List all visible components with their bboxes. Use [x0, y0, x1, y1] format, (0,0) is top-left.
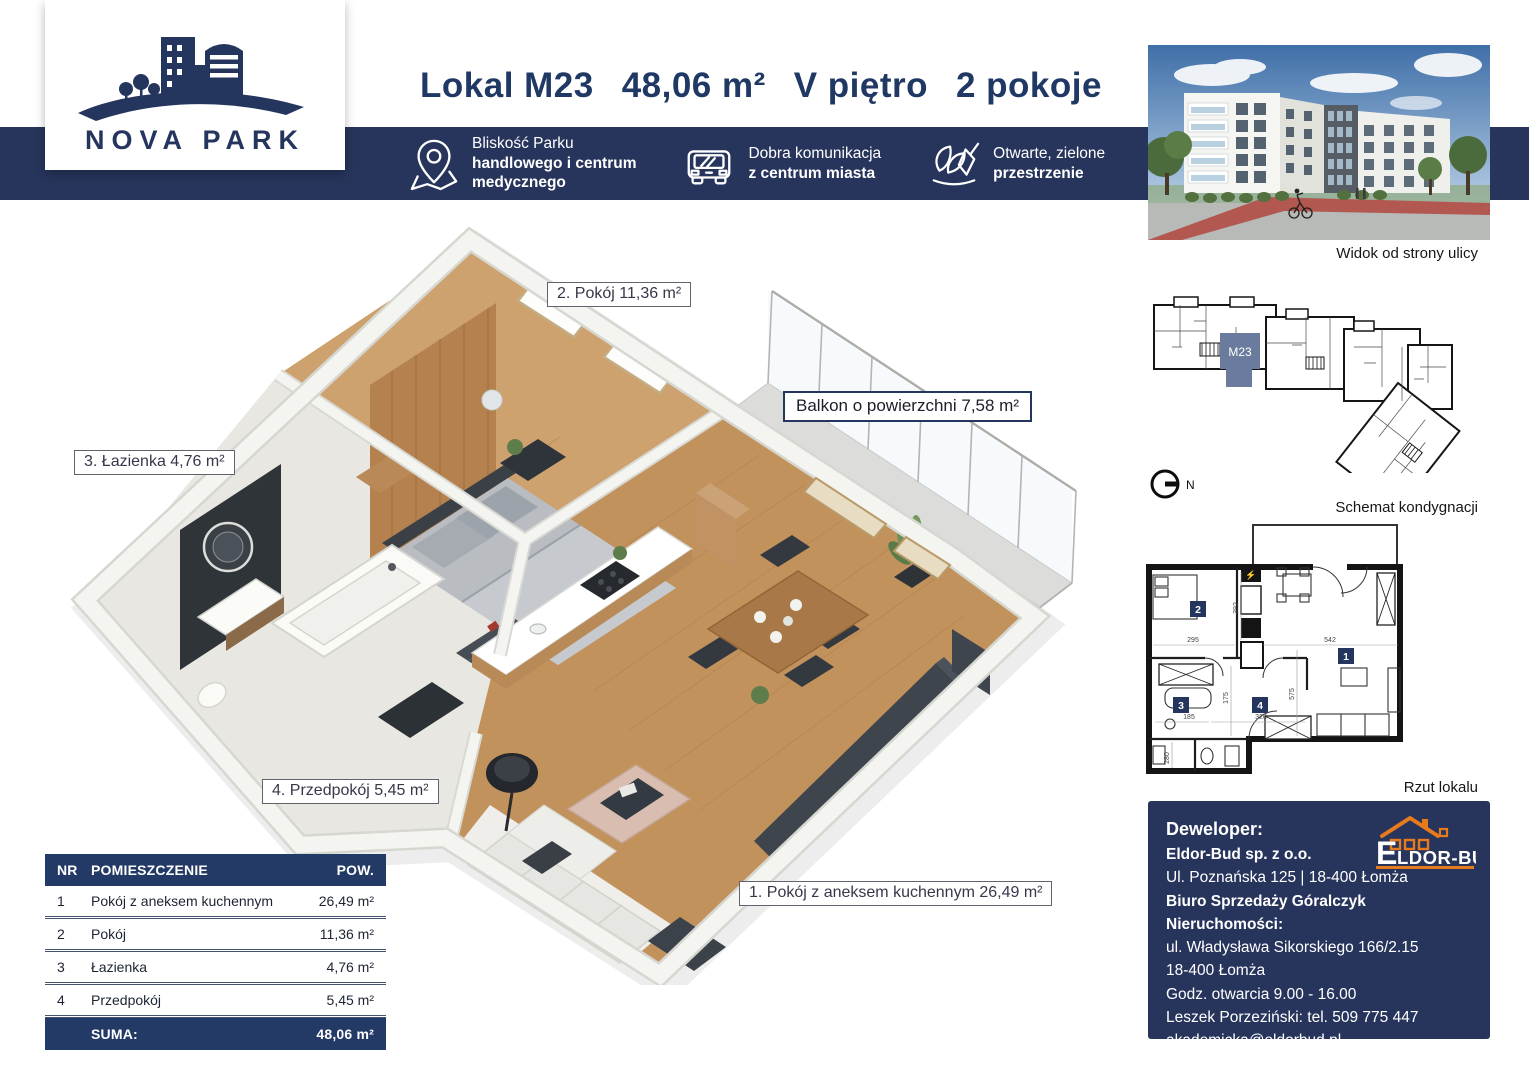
plan-label-room1: 1. Pokój z aneksem kuchennym 26,49 m²	[739, 881, 1052, 906]
feature-line: handlowego i centrum	[472, 154, 636, 174]
contact-phone: Leszek Porzeziński: tel. 509 775 447	[1166, 1006, 1472, 1029]
floor-schematic-caption: Schemat kondygnacji	[1148, 499, 1478, 516]
floor-schematic: M23	[1146, 287, 1494, 473]
svg-text:295: 295	[1187, 637, 1199, 644]
eldor-bud-logo: E LDOR-BUD	[1374, 813, 1476, 869]
developer-address: Ul. Poznańska 125 | 18-400 Łomża	[1166, 866, 1472, 889]
photo-caption: Widok od strony ulicy	[1148, 245, 1478, 262]
room-area-table: NR POMIESZCZENIE POW. 1 Pokój z aneksem …	[45, 854, 386, 1050]
brand-logo-card: NOVA PARK	[45, 0, 345, 170]
svg-text:575: 575	[1289, 688, 1296, 700]
table-row: 2 Pokój 11,36 m²	[45, 919, 386, 952]
unit-rooms: 2 pokoje	[956, 66, 1102, 106]
svg-text:⚡: ⚡	[1245, 569, 1256, 581]
table-sum-row: SUMA: 48,06 m²	[45, 1018, 386, 1050]
table-row: 3 Łazienka 4,76 m²	[45, 952, 386, 985]
nova-park-logo-icon: NOVA PARK	[64, 9, 326, 161]
svg-text:1: 1	[1343, 651, 1349, 663]
unit-highlight-label: M23	[1228, 345, 1252, 359]
svg-text:2: 2	[1195, 604, 1201, 616]
svg-text:E: E	[1376, 835, 1397, 869]
feature-line: medycznego	[472, 173, 636, 193]
svg-text:320: 320	[1255, 714, 1267, 721]
sales-office-street: ul. Władysława Sikorskiego 166/2.15	[1166, 936, 1472, 959]
plan-label-room3: 3. Łazienka 4,76 m²	[74, 450, 235, 475]
feature-line: z centrum miasta	[748, 164, 881, 184]
feature-line: Otwarte, zielone	[993, 144, 1105, 164]
table-row: 1 Pokój z aneksem kuchennym 26,49 m²	[45, 886, 386, 919]
svg-text:280: 280	[1164, 752, 1171, 764]
street-view-photo	[1148, 45, 1490, 240]
brand-name: NOVA PARK	[85, 125, 305, 155]
svg-text:392: 392	[1233, 602, 1240, 614]
feature-line: Bliskość Parku	[472, 134, 636, 154]
unit-number: Lokal M23	[420, 66, 594, 106]
feature-line: przestrzenie	[993, 164, 1105, 184]
plan-label-room2: 2. Pokój 11,36 m²	[547, 282, 691, 307]
table-header: NR POMIESZCZENIE POW.	[45, 854, 386, 886]
feature-line: Dobra komunikacja	[748, 144, 881, 164]
map-pin-icon	[408, 134, 460, 192]
unit-floor: V piętro	[794, 66, 928, 106]
svg-text:4: 4	[1257, 700, 1263, 712]
sales-office-city: 18-400 Łomża	[1166, 959, 1472, 982]
feature-green: Otwarte, zielone przestrzenie	[927, 137, 1105, 191]
contact-email: akademicka@eldorbud.pl	[1166, 1029, 1472, 1052]
unit-title-row: Lokal M23 48,06 m² V piętro 2 pokoje	[420, 66, 1102, 106]
svg-text:LDOR-BUD: LDOR-BUD	[1397, 847, 1476, 868]
svg-text:542: 542	[1324, 637, 1336, 644]
svg-text:185: 185	[1183, 714, 1195, 721]
office-hours: Godz. otwarcia 9.00 - 16.00	[1166, 983, 1472, 1006]
developer-info-box: E LDOR-BUD Deweloper: Eldor-Bud sp. z o.…	[1148, 801, 1490, 1039]
plan-label-room4: 4. Przedpokój 5,45 m²	[262, 779, 439, 804]
compass-label: N	[1186, 478, 1195, 492]
svg-text:3: 3	[1178, 700, 1184, 712]
sales-office-heading: Biuro Sprzedaży Góralczyk Nieruchomości:	[1166, 890, 1472, 937]
website-url: www.novapark2.pl	[1166, 1054, 1472, 1080]
unit-area: 48,06 m²	[622, 66, 766, 106]
unit-plan-caption: Rzut lokalu	[1148, 779, 1478, 796]
feature-list: Bliskość Parku handlowego i centrum medy…	[408, 127, 1128, 200]
table-row: 4 Przedpokój 5,45 m²	[45, 985, 386, 1018]
plan-label-balcony: Balkon o powierzchni 7,58 m²	[783, 391, 1032, 422]
feature-location: Bliskość Parku handlowego i centrum medy…	[408, 134, 636, 193]
svg-text:175: 175	[1223, 692, 1230, 704]
car-icon	[682, 137, 736, 191]
flyer-page: NOVA PARK Lokal M23 48,06 m² V piętro 2 …	[0, 0, 1529, 1080]
feature-transport: Dobra komunikacja z centrum miasta	[682, 137, 881, 191]
plant-icon	[927, 137, 981, 191]
unit-2d-plan: ⚡	[1145, 518, 1495, 778]
